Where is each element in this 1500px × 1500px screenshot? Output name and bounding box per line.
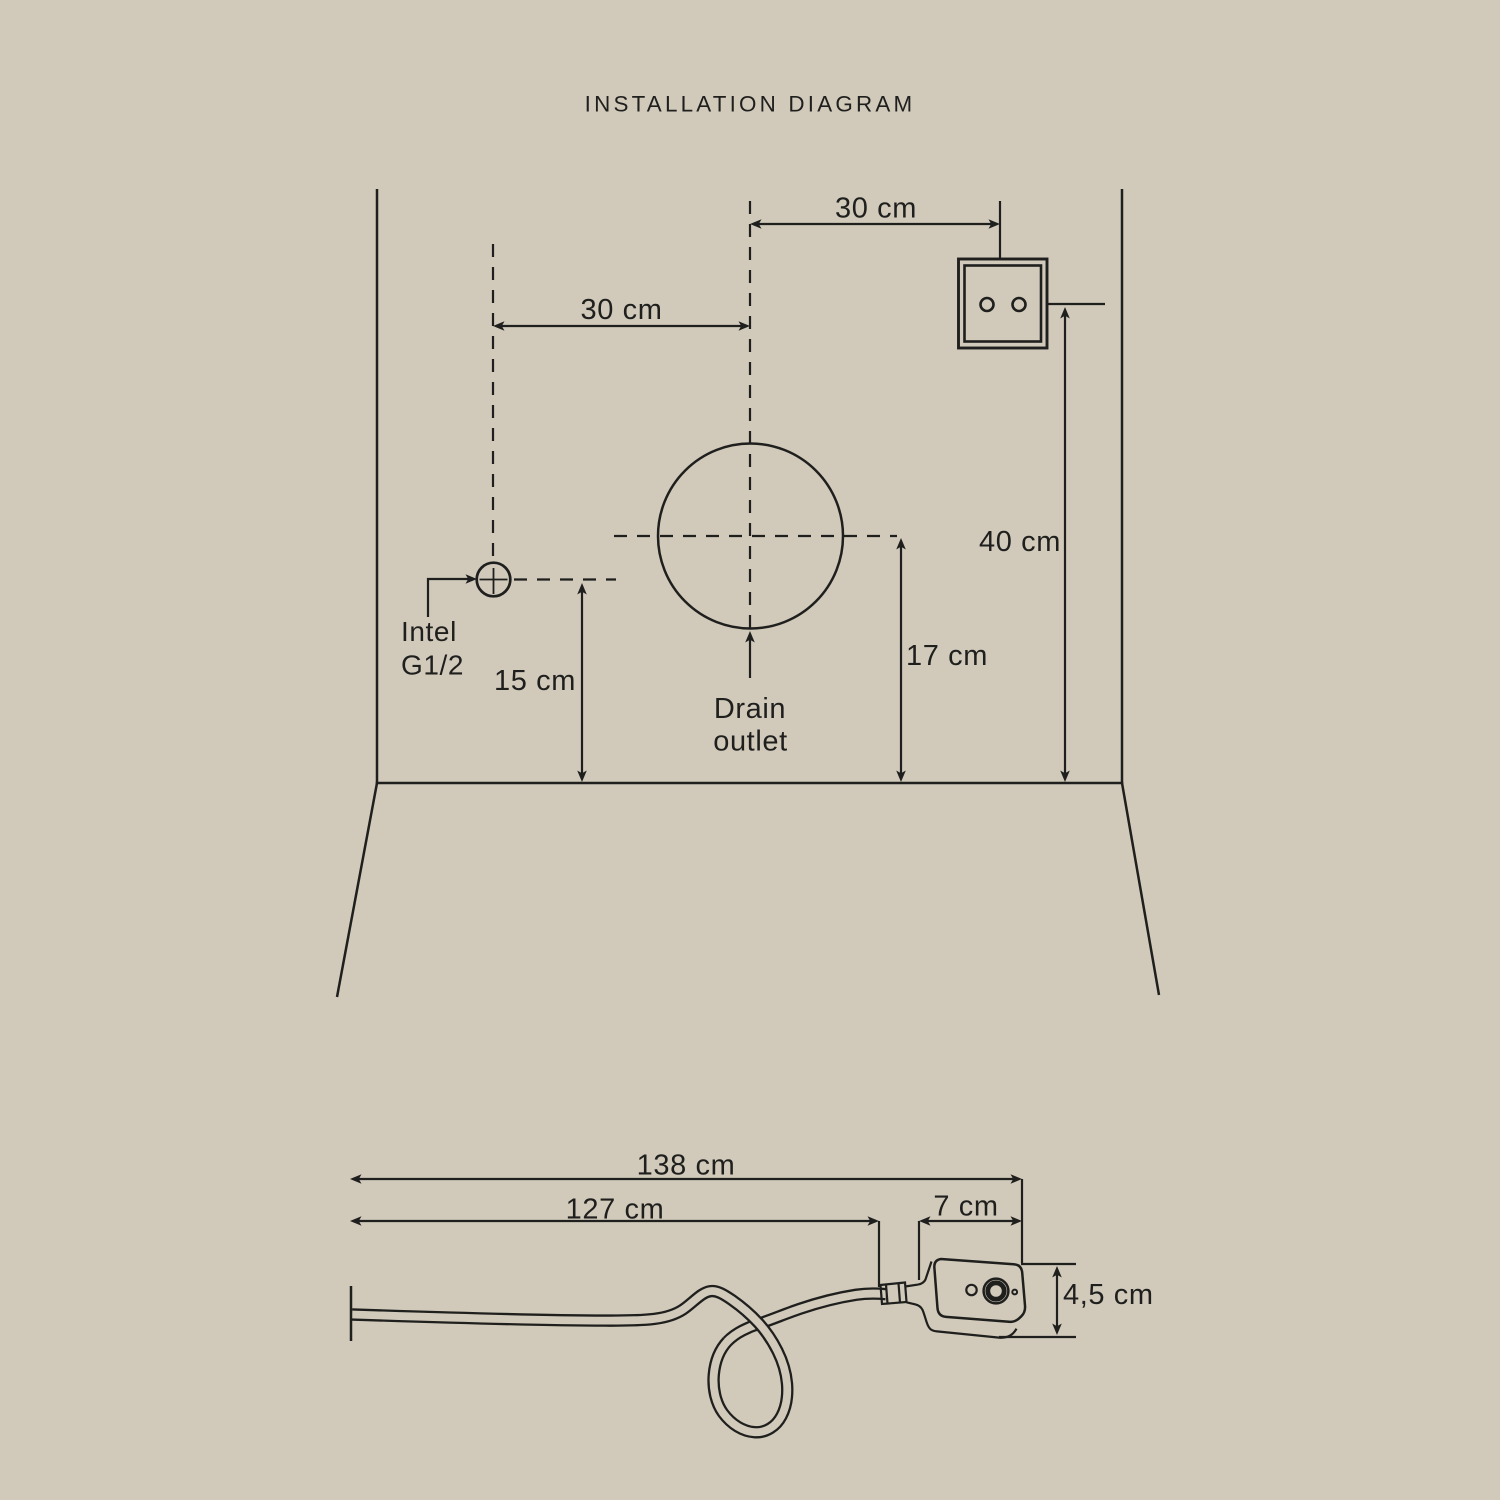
svg-text:G1/2: G1/2: [401, 650, 464, 681]
svg-text:INSTALLATION DIAGRAM: INSTALLATION DIAGRAM: [585, 92, 916, 117]
svg-text:30 cm: 30 cm: [581, 294, 663, 326]
svg-text:17 cm: 17 cm: [906, 640, 988, 672]
svg-text:127 cm: 127 cm: [566, 1194, 665, 1226]
svg-text:outlet: outlet: [713, 726, 788, 758]
svg-text:15 cm: 15 cm: [494, 665, 576, 697]
svg-text:30 cm: 30 cm: [835, 193, 917, 225]
svg-text:Intel: Intel: [401, 616, 457, 647]
svg-text:Drain: Drain: [714, 693, 786, 725]
svg-text:138 cm: 138 cm: [637, 1150, 736, 1182]
svg-text:4,5 cm: 4,5 cm: [1063, 1279, 1154, 1311]
svg-text:40 cm: 40 cm: [979, 526, 1061, 558]
svg-text:7 cm: 7 cm: [933, 1191, 998, 1223]
